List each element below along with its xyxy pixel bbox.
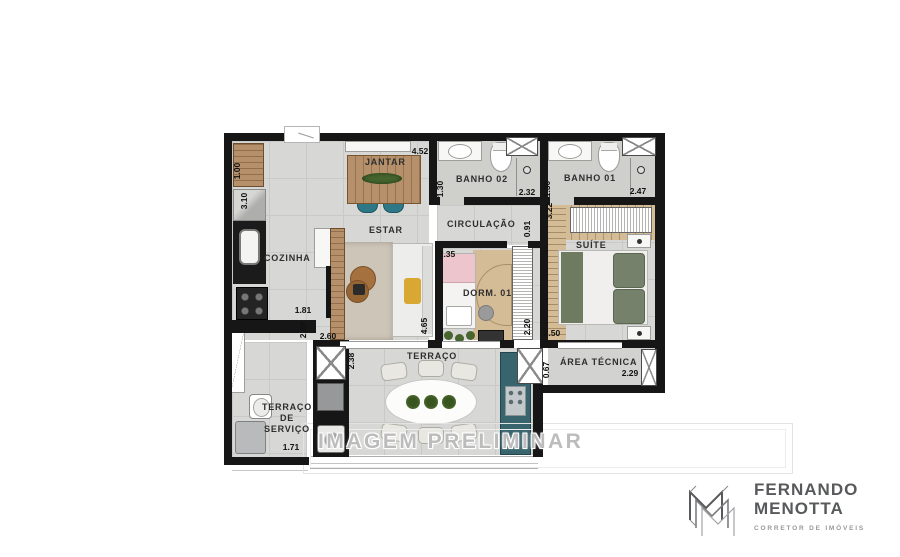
brand-logo: FERNANDO MENOTTA CORRETOR DE IMÓVEIS xyxy=(682,468,865,548)
terraco-chair-2 xyxy=(418,360,444,377)
jantar-plant xyxy=(362,173,402,184)
window-suite xyxy=(558,342,622,349)
terraco-plant-1 xyxy=(406,395,420,409)
terraco-plant-3 xyxy=(442,395,456,409)
wall-dorm-top-b xyxy=(528,241,540,248)
room-label-circulacao: CIRCULAÇÃO xyxy=(447,219,516,229)
wall-area-tecnica-bottom xyxy=(540,385,665,393)
dim-banho01-comp: 2.47 xyxy=(627,186,649,196)
servico-cabinet xyxy=(230,330,245,393)
room-label-banho02: BANHO 02 xyxy=(456,174,508,184)
dim-estar-comp: 4.65 xyxy=(419,316,429,336)
brand-name-line1: FERNANDO xyxy=(754,480,865,499)
dorm01-chair xyxy=(478,305,494,321)
terraco-cooktop-module xyxy=(505,386,526,416)
sliding-door-dorm-terraco xyxy=(442,341,500,349)
terraco-chair-1 xyxy=(380,361,408,381)
sliding-door-estar-terraco xyxy=(340,341,428,349)
wall-dorm-terraco-b xyxy=(500,340,514,348)
floorplan-image: JANTAR ESTAR COZINHA BANHO 02 BANHO 01 C… xyxy=(0,0,900,557)
suite-pillow-1 xyxy=(613,253,645,288)
dim-area-tecnica-prof: 0.67 xyxy=(541,360,551,380)
wall-suite-left xyxy=(540,205,548,342)
dim-cozinha-larg: 1.81 xyxy=(292,305,314,315)
wall-estar-terraco-a xyxy=(428,340,442,348)
banho01-shaft xyxy=(622,137,656,156)
estar-tv xyxy=(326,266,331,318)
brand-tagline: CORRETOR DE IMÓVEIS xyxy=(754,525,865,532)
estar-tray xyxy=(353,284,365,295)
dim-banho02-comp: 2.32 xyxy=(516,187,538,197)
wall-dorm-left xyxy=(435,245,443,342)
servico-sill xyxy=(232,465,308,471)
estar-tv-cabinet xyxy=(314,228,331,268)
banho01-shower-head xyxy=(637,166,645,174)
dim-dorm01-comp: 2.20 xyxy=(522,317,532,337)
wall-top-right xyxy=(318,133,660,141)
dim-dorm01-larg: 2.35 xyxy=(436,249,458,259)
room-label-terraco-servico: TERRAÇO DE SERVIÇO xyxy=(258,402,316,435)
dim-terraco-prof: 2.38 xyxy=(346,351,356,371)
wall-top-left xyxy=(224,133,284,141)
dim-servico-larg: 1.71 xyxy=(280,442,302,452)
room-label-area-tecnica: ÁREA TÉCNICA xyxy=(560,357,637,367)
dim-cozinha-bancada: 1.00 xyxy=(232,161,242,181)
wall-servico-bottom xyxy=(224,457,309,465)
area-tecnica-shaft xyxy=(641,349,657,386)
room-label-jantar: JANTAR xyxy=(365,157,406,167)
dorm01-plant-1 xyxy=(444,331,453,340)
brand-name-line2: MENOTTA xyxy=(754,499,865,518)
dim-area-tecnica-comp: 2.29 xyxy=(619,368,641,378)
wall-dorm-top-a xyxy=(435,241,507,248)
room-label-estar: ESTAR xyxy=(369,225,403,235)
suite-bed-runner xyxy=(561,252,583,323)
servico-label-line3: SERVIÇO xyxy=(264,424,310,434)
servico-label-line2: DE xyxy=(280,413,294,423)
brand-text: FERNANDO MENOTTA CORRETOR DE IMÓVEIS xyxy=(754,468,865,532)
banho02-sink xyxy=(448,144,472,159)
room-label-banho01: BANHO 01 xyxy=(564,173,616,183)
servico-shaft xyxy=(316,346,346,380)
room-label-dorm01: DORM. 01 xyxy=(463,288,512,298)
room-label-terraco: TERRAÇO xyxy=(407,351,457,361)
banho02-shower-head xyxy=(523,166,531,174)
dim-banho01-larg: 1.30 xyxy=(542,179,552,199)
suite-pillow-2 xyxy=(613,289,645,324)
wall-left xyxy=(224,133,232,465)
watermark-text: IMAGEM PRELIMINAR xyxy=(318,430,583,454)
dim-estar-larg: 2.60 xyxy=(317,331,339,341)
suite-nightstand-2 xyxy=(627,326,651,340)
estar-sofa-pillow xyxy=(404,278,421,304)
banho01-toilet xyxy=(598,142,620,172)
suite-nightstand-1 xyxy=(627,234,651,248)
suite-lamp-1 xyxy=(637,239,642,244)
dorm01-plant-3 xyxy=(466,331,475,340)
kitchen-counter-gray xyxy=(233,189,266,221)
dim-suite-larg: 2.50 xyxy=(541,328,563,338)
brand-monogram-icon xyxy=(682,468,746,548)
kitchen-stove xyxy=(236,287,268,320)
dim-suite-comp: 3.22 xyxy=(544,201,554,221)
estar-tv-panel xyxy=(330,228,345,340)
suite-wardrobe xyxy=(570,207,652,233)
suite-lamp-2 xyxy=(637,331,642,336)
banho01-sink xyxy=(558,144,582,159)
servico-label-line1: TERRAÇO xyxy=(262,402,312,412)
dim-cozinha-prof: 3.10 xyxy=(239,191,249,211)
terraco-plant-2 xyxy=(424,395,438,409)
room-label-cozinha: COZINHA xyxy=(264,253,311,263)
banho02-shaft xyxy=(506,137,538,156)
dorm01-bed-bench xyxy=(446,306,472,326)
terraco-shaft xyxy=(517,348,543,384)
room-label-suite: SUÍTE xyxy=(576,240,607,250)
dim-banho02-larg: 1.30 xyxy=(435,179,445,199)
dim-cozinha-comp: 2.89 xyxy=(298,320,308,340)
dim-jantar-larg: 4.52 xyxy=(409,146,431,156)
suite-bed xyxy=(558,250,648,325)
dim-circulacao-larg: 0.91 xyxy=(522,219,532,239)
servico-appliance xyxy=(317,383,344,411)
jantar-buffet xyxy=(345,141,411,152)
terraco-chair-3 xyxy=(450,361,478,381)
kitchen-sink xyxy=(239,229,260,265)
